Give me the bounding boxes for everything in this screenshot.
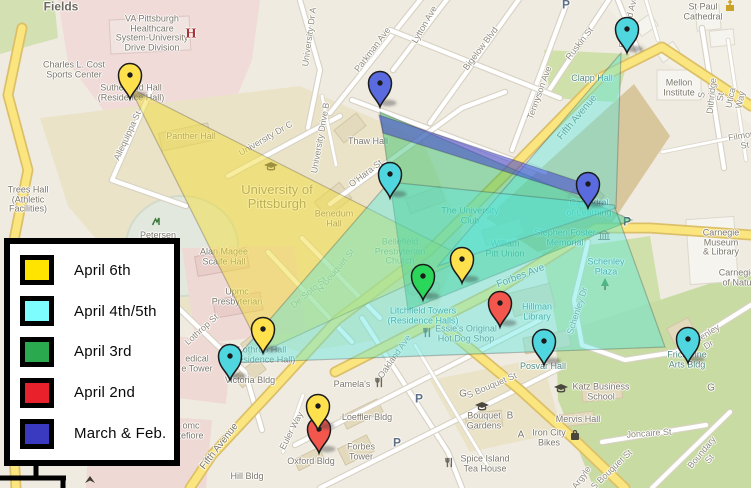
fork-knife-icon [445, 455, 456, 473]
map-label-p: P [623, 216, 631, 229]
map-pin-parkman-ave[interactable] [369, 72, 397, 108]
map-pin-hillman-library[interactable] [489, 292, 517, 328]
map-label-joncaire-st: Joncaire St [626, 428, 672, 441]
map-label-university-dr-a: University Dr A [301, 7, 319, 67]
legend-swatch-april-6th [20, 255, 54, 285]
map-label-oakland-ave: Oakland Ave [376, 333, 413, 380]
monument-icon [152, 213, 161, 231]
map-label-schenley-dr: Schenley Dr [566, 286, 590, 336]
road-de-soto-st [268, 252, 352, 342]
road-allequippa-st [112, 88, 186, 206]
road-fifth-avenue [190, 47, 751, 488]
map-label-litchfield-towers: Litchfield Towers (Residence Halls) [387, 306, 458, 325]
road-university-drive-b [322, 96, 336, 165]
map-label-fields: Fields [44, 1, 79, 14]
grad-cap-icon [264, 159, 278, 177]
map-pin-the-university-club[interactable] [379, 163, 407, 199]
map-label-a: A [518, 431, 525, 442]
road-bigelow-blvd [430, 0, 527, 123]
road-s-bouquet-st [438, 322, 625, 488]
road-sennott-st [295, 320, 540, 445]
map-label-g: G [459, 390, 467, 401]
legend-swatch-april-3rd [20, 337, 54, 367]
legend-swatch-march-feb [20, 419, 54, 449]
shopping-bag-icon [570, 428, 580, 446]
map-label-victoria-bldg: Victoria Bldg [225, 376, 275, 386]
map-label-forbes: Forbes Tower [347, 442, 375, 461]
map-label-pamela-s: Pamela's [334, 380, 371, 390]
map-label-thaw-hall: Thaw Hall [348, 137, 388, 147]
tree-icon [600, 278, 610, 296]
map-label-bigelow-blvd: Bigelow Blvd [462, 25, 501, 72]
map-pin-cathedral-of-learning[interactable] [577, 173, 605, 209]
map-label-o-hara-st: O'Hara St [347, 158, 384, 189]
map-label-b: B [507, 412, 514, 423]
map-label-frick-fine: Frick Fine Arts Bldg [667, 350, 707, 369]
overlay-april-4th-5th-a [438, 53, 621, 266]
grad-cap-icon [475, 399, 489, 417]
legend-item-label: April 3rd [74, 343, 132, 360]
map-label-spice-island: Spice Island Tea House [460, 454, 509, 473]
map-label-hill-bldg: Hill Bldg [230, 472, 263, 482]
grad-cap-icon [554, 381, 568, 399]
landmark-icon [598, 227, 610, 245]
map-label-edical: edical e Tower [181, 354, 212, 373]
map-label-katz-business: Katz Business School [572, 382, 629, 401]
road-filmore-st [662, 134, 751, 152]
map-pin-lothrop-hall[interactable] [252, 318, 280, 354]
road-parkman-ave [330, 0, 428, 113]
road-lothrop-st [168, 298, 262, 430]
map-label-panther-hall: Panther Hall [166, 132, 216, 142]
legend-swatch-april-2nd [20, 378, 54, 408]
map-label-s-dithridge-st: S Dithridge St [695, 75, 728, 117]
map-pin-victoria-bldg[interactable] [219, 345, 247, 381]
map-label-forbes-ave: Forbes Ave [496, 263, 547, 291]
map-pin-william-pitt-union[interactable] [451, 248, 479, 284]
map-pin-litchfield-towers[interactable] [412, 265, 440, 301]
map-label-p: P [562, 0, 570, 11]
map-label-s-bouquet-st: S Bouquet St [466, 371, 519, 401]
legend-item-april-6th: April 6th [20, 255, 174, 285]
legend-item-label: April 2nd [74, 384, 135, 401]
map-label-iron-city: Iron City Bikes [532, 428, 566, 447]
map-label-lothrop-st: Lothrop St [183, 312, 220, 347]
fork-knife-icon [423, 325, 434, 343]
map-label-schenley-dr: Schenley Dr [682, 321, 730, 361]
legend: April 6thApril 4th/5thApril 3rdApril 2nd… [4, 238, 180, 466]
road-n-bouquet-st [302, 238, 380, 318]
map-label-g: G [707, 384, 715, 395]
legend-item-april-3rd: April 3rd [20, 337, 174, 367]
road-lower-cross [320, 368, 560, 488]
map-label-n-bouquet-st: N Bouquet St [315, 247, 357, 294]
map-label-oxford-bldg: Oxford Bldg [287, 457, 335, 467]
map-label-va-pittsburgh: VA Pittsburgh Healthcare System-Universi… [116, 15, 189, 54]
legend-item-label: April 6th [74, 262, 131, 279]
road-schenley-dr [574, 242, 751, 360]
map-pin-bellefield-ave-at-fifth-avenue[interactable] [616, 18, 644, 54]
map-label-omc: omc tefiore [178, 421, 203, 440]
map-label-allequippa-st: Allequippa St [112, 110, 143, 162]
overlay-april-6th [130, 88, 466, 352]
road-craig-st [646, 0, 658, 40]
road-atwood-st [415, 345, 490, 470]
map-label-upmc: Upmc Presbyterian [212, 287, 263, 306]
road-university-dr-a [300, 0, 320, 128]
road-grid-cross-1 [352, 100, 545, 172]
map-label-loeffler-bldg: Loeffler Bldg [342, 413, 392, 423]
map-label-boundary-st: Boundary St [684, 433, 728, 480]
map-pin-sutherland-hall[interactable] [119, 64, 147, 100]
map-label-bellefield: Bellefield Presbyterian Church [375, 237, 426, 266]
road-joncaire-st [602, 425, 706, 442]
map-label-schenley: Schenley Plaza [587, 257, 624, 276]
legend-item-label: April 4th/5th [74, 303, 157, 320]
poi-dark-icon [84, 472, 96, 488]
road-bellefield-ave [618, 0, 641, 58]
map-label-sutherland-hall: Sutherland Hall (Residence Hall) [98, 83, 165, 102]
map-label-s-bouquet-st: S Bouquet St [590, 448, 635, 488]
road-oakland-ave [362, 318, 462, 488]
legend-swatch-april-4th-5th [20, 296, 54, 326]
map-label-university-of: University of Pittsburgh [241, 183, 313, 211]
map-label-benedum: Benedum Hall [315, 209, 354, 228]
fork-knife-icon [375, 375, 386, 393]
church-icon [725, 0, 735, 16]
map-label-parkman-ave: Parkman Ave [353, 26, 393, 74]
map-pin-frick-fine-arts-bldg[interactable] [677, 328, 705, 364]
map-label-fifth-avenue: Fifth Avenue [556, 93, 600, 142]
road-utica-way [728, 40, 746, 160]
map-label-bellefield-ave: Bellefield Ave [618, 0, 640, 49]
road-lytton-ave [393, 0, 458, 70]
map-label-fifth-avenue: Fifth Avenue [199, 422, 242, 472]
road-ohara-st [330, 92, 505, 204]
road-boundary-st [652, 412, 730, 488]
map-label-de-soto-st: De Soto St [289, 275, 329, 310]
map-pin-euler-way-red[interactable] [308, 418, 336, 454]
map-label-utica-way: Utica Way [724, 87, 747, 111]
road-forbes-ave [335, 228, 751, 372]
map-canvas[interactable]: Allequippa StUniversity Dr AUniversity D… [0, 0, 751, 488]
map-label-charles-l-cost: Charles L. Cost Sports Center [43, 60, 105, 79]
map-label-mellon: Mellon Institute [663, 78, 695, 97]
map-label-h: H [186, 26, 197, 41]
overlay-march-feb [379, 115, 589, 198]
overlay-april-3rd [380, 112, 632, 310]
map-buildings [109, 5, 738, 471]
map-label-st-paul: St Paul Cathedral [683, 2, 722, 21]
map-label-lothrop-hall: Lothrop Hall (Residence Hall) [229, 345, 296, 364]
map-label-tennyson-ave: Tennyson Ave [526, 65, 554, 121]
legend-item-march-feb: March & Feb. [20, 419, 174, 449]
map-label-university-dr-c: University Dr C [237, 120, 294, 159]
map-label-bouquet: Bouquet Gardens [467, 411, 502, 430]
map-label-filmore-st: Filmore St [728, 129, 751, 153]
road-euler-way [283, 395, 303, 452]
road-grid-cross-2 [390, 30, 560, 98]
map-label-posvar-hall: Posvar Hall [520, 362, 566, 372]
map-label-the-university: The University Club [441, 206, 499, 225]
map-label-essie-s-original: Essie's Original Hot Dog Shop [435, 324, 497, 343]
road-ruskin-st [548, 0, 612, 92]
road-university-dr-c [228, 116, 340, 176]
legend-item-april-2nd: April 2nd [20, 378, 174, 408]
map-pin-posvar-hall[interactable] [533, 330, 561, 366]
map-label-alan-magee: Alan Magee Scaife Hall [200, 247, 248, 266]
map-label-euler-way: Euler Way [278, 410, 305, 451]
map-label-william: William Pitt Union [485, 239, 524, 258]
road-tennyson-ave [512, 5, 566, 150]
map-label-stephen-foster: Stephen Foster Memorial [534, 228, 596, 247]
map-pin-euler-way-yellow[interactable] [307, 395, 335, 431]
map-label-mervis-hall: Mervis Hall [556, 415, 601, 425]
map-label-university-drive-b: University Drive B [310, 102, 332, 174]
map-label-ruskin-st: Ruskin St [564, 26, 595, 62]
map-label-argyle: Argyle [571, 465, 594, 488]
map-label-lytton-ave: Lytton Ave [410, 5, 439, 46]
map-label-carnegie: Carnegie of Natu [719, 268, 751, 287]
map-label-cathedral: Cathedral of Learning [566, 198, 611, 217]
legend-item-april-4th-5th: April 4th/5th [20, 296, 174, 326]
map-label-trees-hall: Trees Hall (Athletic Facilities) [8, 185, 49, 214]
road-s-dithridge-st [702, 28, 724, 168]
map-label-p: P [415, 393, 423, 406]
map-label-p: P [393, 437, 401, 450]
map-label-hillman: Hillman Library [522, 302, 552, 321]
overlay-april-4th-5th-b [232, 182, 665, 363]
map-label-clapp-hall: Clapp Hall [571, 74, 613, 84]
legend-item-label: March & Feb. [74, 425, 166, 442]
map-label-carnegie: Carnegie Museum & Library [703, 228, 740, 257]
